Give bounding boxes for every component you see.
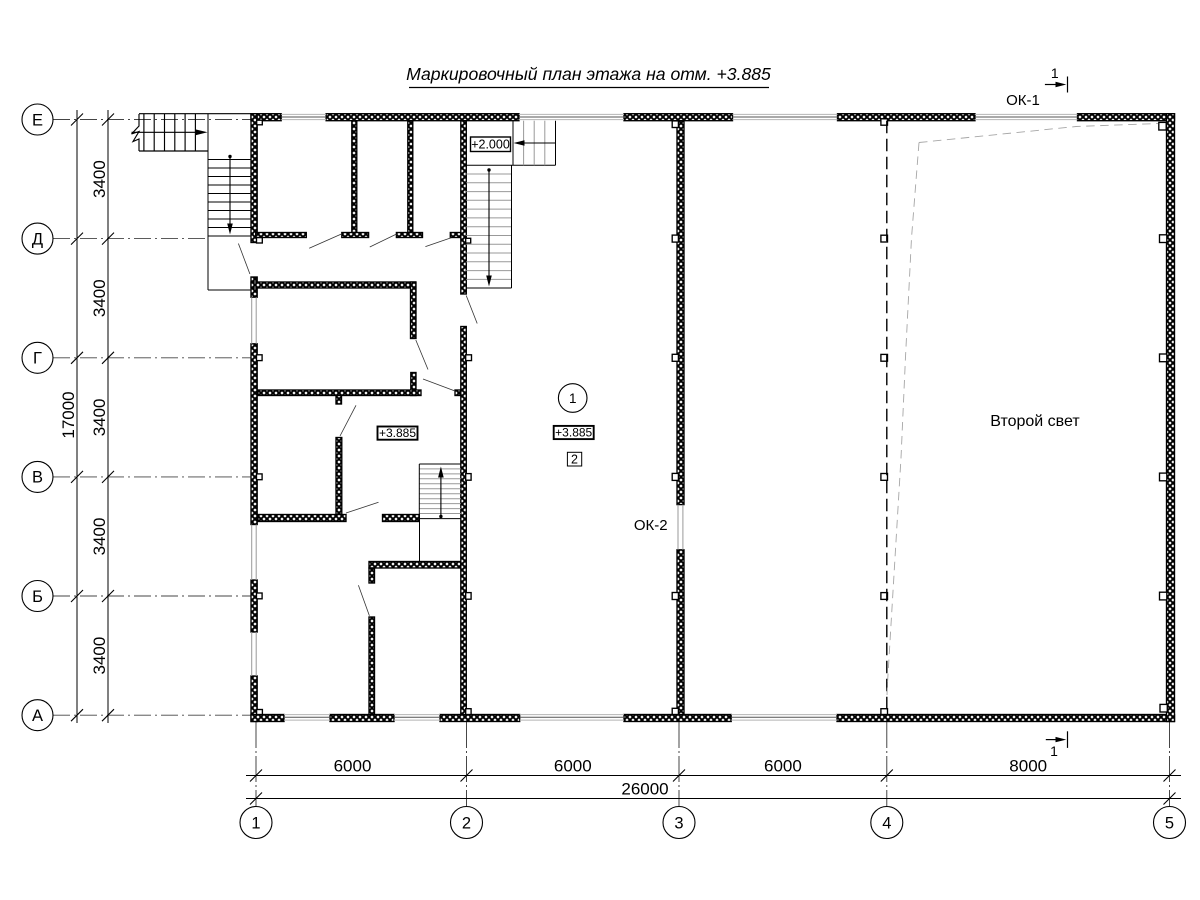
svg-text:+3.885: +3.885 [379,426,416,440]
svg-text:6000: 6000 [334,757,372,776]
svg-text:ОК-2: ОК-2 [634,517,668,534]
svg-text:6000: 6000 [764,757,802,776]
svg-text:2: 2 [571,453,578,467]
svg-text:1: 1 [251,814,260,832]
svg-text:6000: 6000 [554,757,592,776]
svg-text:Второй свет: Второй свет [990,413,1080,430]
svg-text:5: 5 [1165,814,1174,832]
svg-text:1: 1 [1051,65,1059,81]
svg-text:+2.000: +2.000 [471,138,510,152]
svg-text:Б: Б [32,588,43,606]
svg-text:4: 4 [882,814,891,832]
svg-text:3: 3 [674,814,683,832]
svg-text:Д: Д [32,230,43,248]
svg-text:17000: 17000 [59,391,78,438]
svg-text:ОК-1: ОК-1 [1006,92,1040,109]
svg-text:А: А [32,707,43,725]
svg-text:8000: 8000 [1009,757,1047,776]
svg-text:1: 1 [569,391,577,406]
svg-text:+3.885: +3.885 [555,426,592,440]
svg-text:3400: 3400 [90,637,109,675]
svg-text:Е: Е [32,111,43,129]
svg-text:26000: 26000 [621,780,668,799]
svg-text:Г: Г [33,350,42,368]
svg-text:3400: 3400 [90,518,109,556]
svg-text:В: В [32,469,43,487]
svg-text:2: 2 [462,814,471,832]
svg-text:Маркировочный план этажа на от: Маркировочный план этажа на отм. +3.885 [406,64,771,84]
svg-text:3400: 3400 [90,279,109,317]
svg-text:1: 1 [1050,743,1058,759]
svg-text:3400: 3400 [90,160,109,198]
svg-text:3400: 3400 [90,398,109,436]
